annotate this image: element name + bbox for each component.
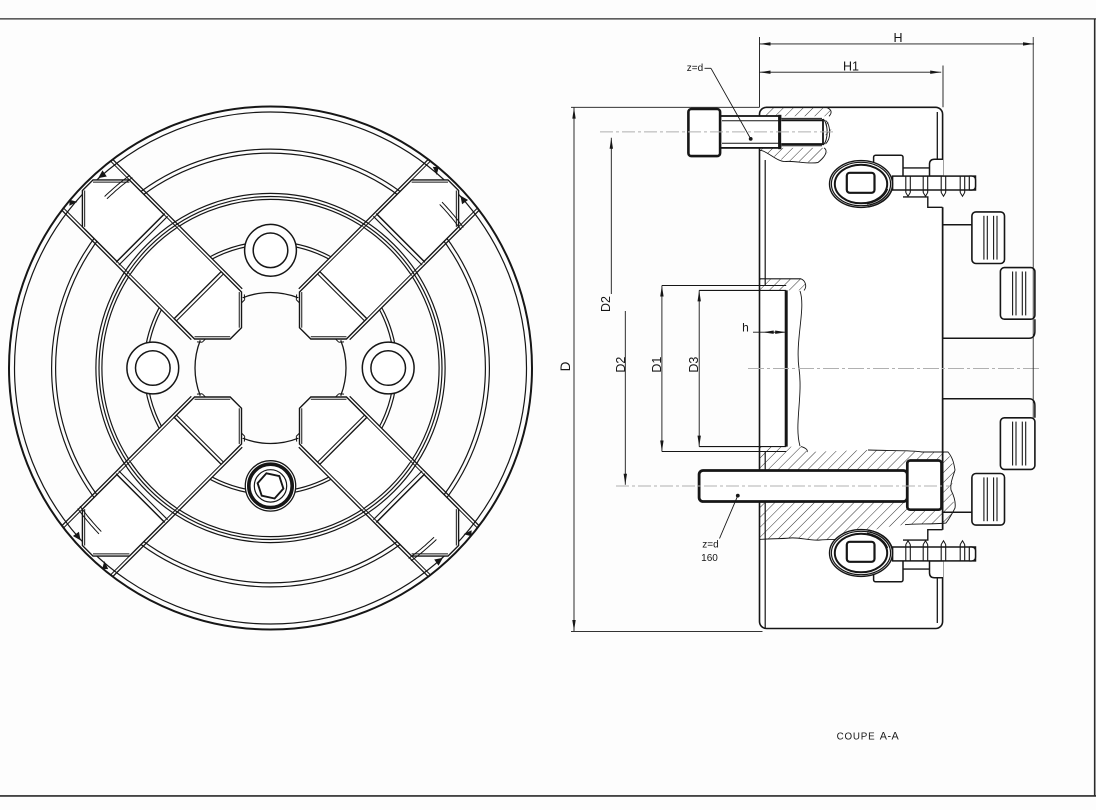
svg-text:D3: D3 (687, 357, 701, 373)
svg-text:D2: D2 (599, 296, 613, 312)
svg-text:160: 160 (701, 553, 718, 564)
svg-text:z=d: z=d (702, 540, 718, 551)
svg-text:H1: H1 (843, 60, 859, 74)
svg-text:D2: D2 (614, 357, 628, 373)
svg-text:h: h (742, 321, 749, 335)
svg-text:D1: D1 (650, 357, 664, 373)
svg-text:z=d: z=d (687, 63, 703, 74)
svg-text:A-A: A-A (880, 731, 900, 743)
svg-text:COUPE: COUPE (837, 732, 876, 743)
svg-text:D: D (558, 361, 573, 371)
svg-text:H: H (893, 31, 902, 45)
